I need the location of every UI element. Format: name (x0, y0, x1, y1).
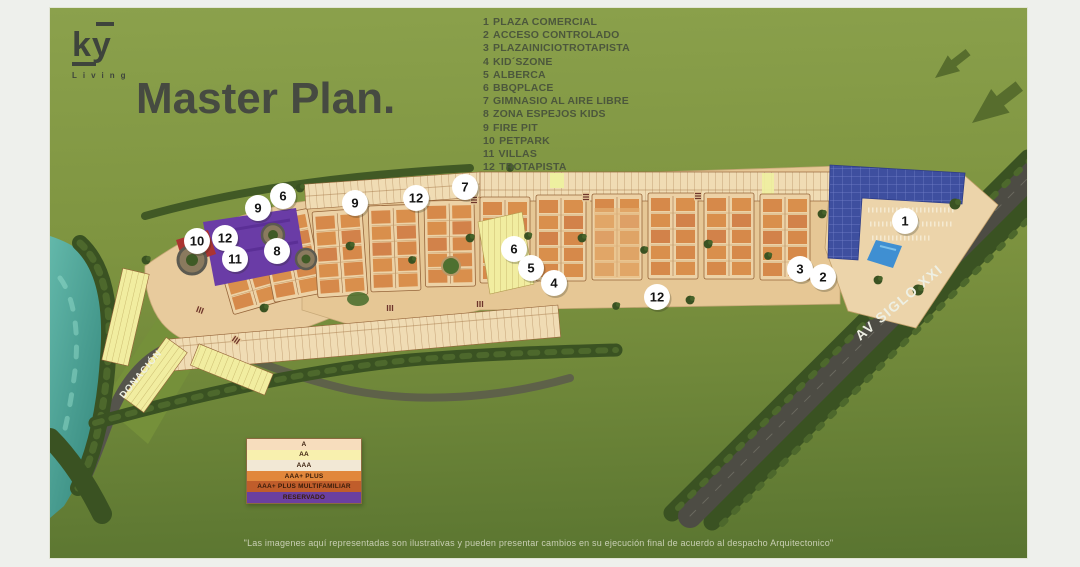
page-title: Master Plan. (136, 74, 395, 124)
amenity-label: KID´SZONE (493, 56, 553, 68)
amenity-item: 10PETPARK (483, 135, 630, 148)
amenity-label: PLAZA COMERCIAL (493, 16, 597, 28)
amenity-item: 12TROTAPISTA (483, 161, 630, 174)
amenity-item: 5ALBERCA (483, 69, 630, 82)
amenity-number: 2 (483, 29, 489, 42)
amenities-list: 1PLAZA COMERCIAL 2ACCESO CONTROLADO 3PLA… (483, 16, 630, 174)
category-legend: A AA AAA AAA+ PLUS AAA+ PLUS MULTIFAMILI… (246, 438, 362, 504)
legend-label: AAA+ PLUS (285, 473, 324, 480)
amenity-label: ALBERCA (493, 69, 546, 81)
amenity-number: 6 (483, 82, 489, 95)
svg-text:9: 9 (351, 196, 358, 211)
amenity-number: 1 (483, 16, 489, 29)
legend-label: AA (299, 451, 309, 458)
amenity-label: BBQPLACE (493, 82, 554, 94)
amenity-item: 1PLAZA COMERCIAL (483, 16, 630, 29)
brand-logo-mark: ky (72, 22, 114, 62)
brand-logo: ky Living (72, 22, 132, 80)
amenity-item: 9FIRE PIT (483, 122, 630, 135)
amenity-number: 5 (483, 69, 489, 82)
amenity-label: FIRE PIT (493, 122, 538, 134)
amenity-label: ZONA ESPEJOS KIDS (493, 108, 606, 120)
legend-row: AA (247, 450, 361, 461)
masterplan-canvas: DONACIÓN AV SIGLO XXI 6 9 12 10 11 8 9 1… (50, 8, 1027, 558)
amenity-number: 3 (483, 42, 489, 55)
svg-text:6: 6 (510, 242, 517, 257)
amenity-item: 6BBQPLACE (483, 82, 630, 95)
svg-text:2: 2 (819, 270, 826, 285)
svg-text:1: 1 (901, 214, 908, 229)
svg-text:11: 11 (228, 252, 242, 267)
svg-text:9: 9 (254, 201, 261, 216)
amenity-label: ACCESO CONTROLADO (493, 29, 619, 41)
svg-text:8: 8 (273, 244, 280, 259)
legend-row: AAA+ PLUS MULTIFAMILIAR (247, 481, 361, 492)
svg-text:5: 5 (527, 261, 534, 276)
svg-text:12: 12 (650, 290, 664, 305)
amenity-item: 4KID´SZONE (483, 56, 630, 69)
amenity-number: 10 (483, 135, 495, 148)
amenity-number: 9 (483, 122, 489, 135)
svg-text:7: 7 (461, 180, 468, 195)
svg-text:10: 10 (190, 234, 204, 249)
svg-text:12: 12 (409, 191, 423, 206)
amenity-item: 11VILLAS (483, 148, 630, 161)
amenity-label: TROTAPISTA (499, 161, 567, 173)
amenity-number: 12 (483, 161, 495, 174)
amenity-item: 3PLAZAINICIOTROTAPISTA (483, 42, 630, 55)
disclaimer-text: "Las imagenes aquí representadas son ilu… (50, 538, 1027, 548)
amenity-item: 7GIMNASIO AL AIRE LIBRE (483, 95, 630, 108)
svg-text:4: 4 (550, 276, 558, 291)
legend-row: AAA (247, 460, 361, 471)
amenity-number: 7 (483, 95, 489, 108)
amenity-item: 2ACCESO CONTROLADO (483, 29, 630, 42)
legend-label: AAA+ PLUS MULTIFAMILIAR (257, 483, 351, 490)
legend-row: RESERVADO (247, 492, 361, 503)
amenity-number: 4 (483, 56, 489, 69)
legend-label: RESERVADO (283, 494, 325, 501)
brand-logo-tagline: Living (72, 71, 132, 80)
amenity-number: 8 (483, 108, 489, 121)
amenity-number: 11 (483, 148, 495, 161)
amenity-label: PETPARK (499, 135, 550, 147)
amenity-label: VILLAS (499, 148, 538, 160)
legend-row: A (247, 439, 361, 450)
legend-label: A (302, 441, 307, 448)
amenity-label: PLAZAINICIOTROTAPISTA (493, 42, 630, 54)
legend-row: AAA+ PLUS (247, 471, 361, 482)
svg-text:12: 12 (218, 231, 232, 246)
svg-text:6: 6 (279, 189, 286, 204)
north-arrows-icon (929, 44, 1027, 135)
legend-label: AAA (297, 462, 312, 469)
amenity-item: 8ZONA ESPEJOS KIDS (483, 108, 630, 121)
svg-text:3: 3 (796, 262, 803, 277)
amenity-label: GIMNASIO AL AIRE LIBRE (493, 95, 629, 107)
